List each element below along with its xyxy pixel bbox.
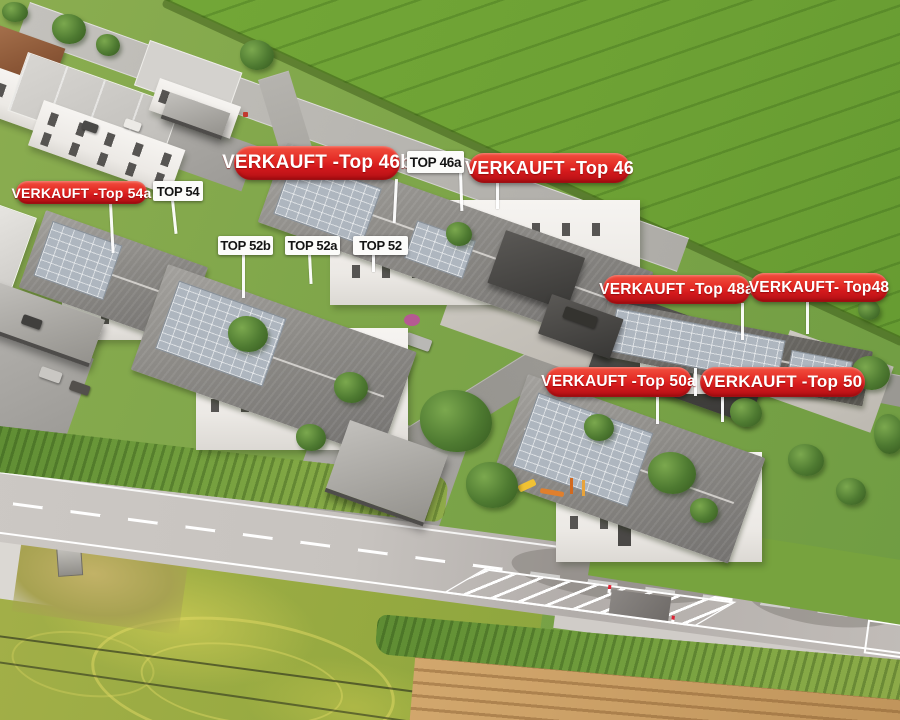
connector-top-52a <box>308 254 312 284</box>
badge-top-50[interactable]: VERKAUFT -Top 50 <box>700 367 865 397</box>
badge-top-48a[interactable]: VERKAUFT -Top 48a <box>603 275 750 304</box>
connector-top-50 <box>721 396 724 422</box>
tree <box>788 444 824 476</box>
badge-top-46[interactable]: VERKAUFT -Top 46 <box>469 153 630 183</box>
red-bin <box>243 112 248 117</box>
tree <box>446 222 472 246</box>
swing-post <box>570 478 573 494</box>
slide-yellow <box>517 479 536 493</box>
badge-top-54[interactable]: TOP 54 <box>153 181 203 201</box>
badge-top-48[interactable]: VERKAUFT- Top48 <box>750 273 888 302</box>
tree <box>836 478 866 505</box>
tree <box>52 14 86 44</box>
badge-top-46b[interactable]: VERKAUFT -Top 46b <box>234 146 400 180</box>
tree <box>690 498 718 523</box>
connector-top-48 <box>806 301 809 334</box>
flower-bush <box>404 314 420 326</box>
tree <box>2 2 28 22</box>
tree <box>648 452 696 494</box>
tree <box>730 398 762 427</box>
tree <box>584 414 614 441</box>
climbing-frame <box>540 488 565 497</box>
badge-top-50a[interactable]: VERKAUFT -Top 50a <box>545 367 692 397</box>
tree <box>874 414 900 454</box>
connector-top-48a <box>741 303 744 340</box>
connector-top-52b <box>242 254 245 298</box>
connector-top-52 <box>372 254 375 272</box>
playground <box>512 470 596 518</box>
tree <box>296 424 326 451</box>
tree <box>334 372 368 403</box>
badge-top-52a[interactable]: TOP 52a <box>285 236 340 255</box>
tree <box>858 300 880 320</box>
connector-top-50a <box>656 396 659 424</box>
tree <box>96 34 120 56</box>
tree <box>420 390 492 452</box>
badge-top-54a[interactable]: VERKAUFT -Top 54a <box>16 181 147 204</box>
swing-post <box>582 480 585 496</box>
tree <box>466 462 518 508</box>
aerial-photo-scene: VERKAUFT -Top 54a TOP 54 VERKAUFT -Top 4… <box>0 0 900 720</box>
marked-bay <box>864 619 900 661</box>
badge-top-52b[interactable]: TOP 52b <box>218 236 273 255</box>
badge-top-52[interactable]: TOP 52 <box>353 236 408 255</box>
solar-panels <box>33 221 122 300</box>
tree <box>228 316 268 352</box>
tree <box>240 40 274 70</box>
connector-top-46 <box>496 182 499 209</box>
badge-top-46a[interactable]: TOP 46a <box>407 151 464 173</box>
connector-top-54 <box>171 200 177 234</box>
